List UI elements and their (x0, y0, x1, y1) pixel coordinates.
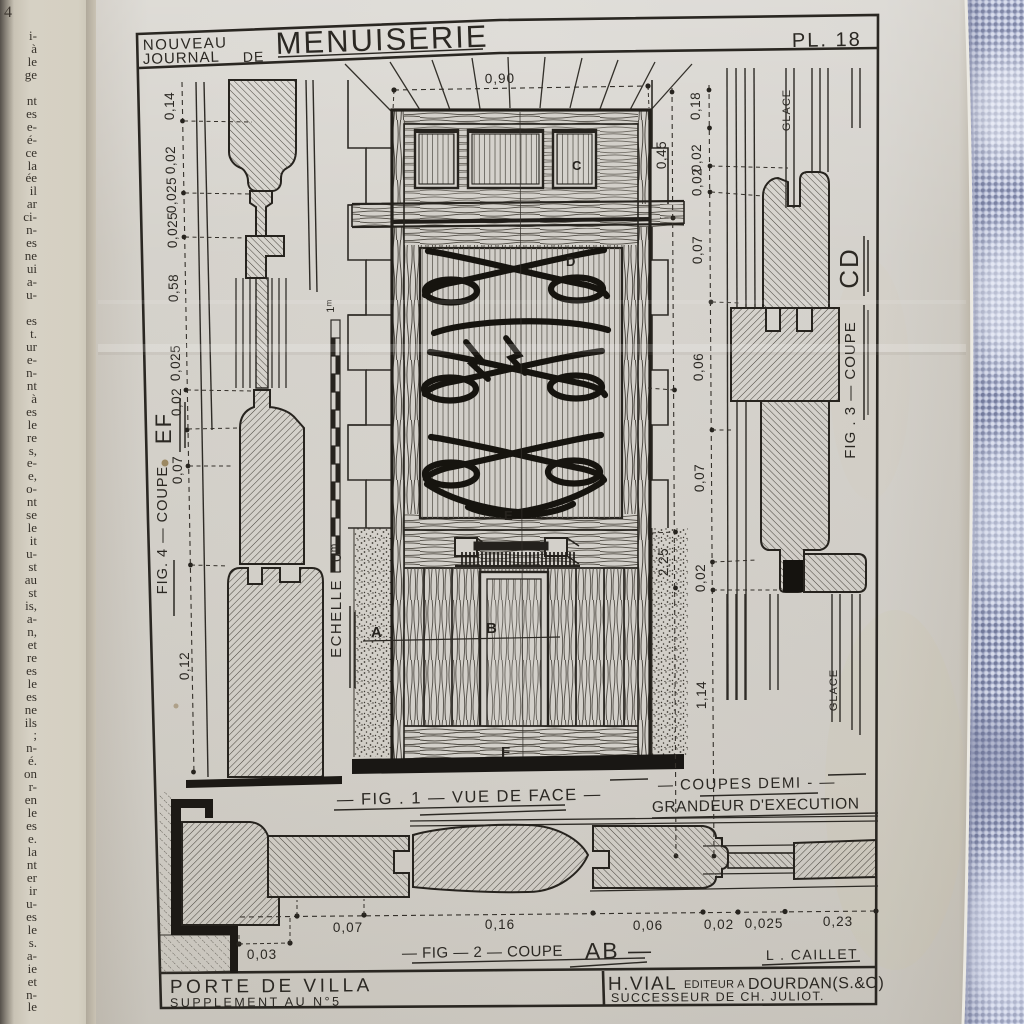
svg-text:MENUISERIE: MENUISERIE (275, 19, 489, 61)
svg-text:0,06: 0,06 (691, 353, 706, 381)
svg-text:0,06: 0,06 (633, 918, 663, 933)
svg-text:0,12: 0,12 (177, 652, 192, 680)
svg-text:0,025: 0,025 (745, 916, 784, 931)
svg-text:0,025: 0,025 (164, 177, 179, 213)
svg-text:ECHELLE : 0ᵐ: ECHELLE : 0ᵐ (328, 542, 345, 658)
svg-text:1,14: 1,14 (694, 681, 709, 709)
svg-text:EF: EF (151, 412, 176, 444)
svg-text:D: D (566, 254, 575, 269)
svg-text:0,02: 0,02 (690, 168, 705, 196)
svg-text:F: F (501, 744, 510, 761)
svg-text:FIG . 3 — COUPE: FIG . 3 — COUPE (842, 321, 859, 459)
svg-text:B: B (486, 620, 497, 637)
svg-text:A: A (371, 624, 382, 641)
svg-text:— COUPES DEMI - —: — COUPES DEMI - — (658, 774, 836, 794)
svg-text:2,25: 2,25 (656, 548, 671, 576)
svg-text:0,18: 0,18 (688, 92, 703, 120)
svg-text:— FIG — 2 — COUPE: — FIG — 2 — COUPE (402, 943, 563, 962)
svg-text:0,025: 0,025 (165, 212, 180, 248)
svg-text:GLACE: GLACE (781, 89, 793, 131)
svg-text:0,14: 0,14 (162, 92, 177, 120)
svg-text:0,16: 0,16 (485, 917, 515, 932)
svg-text:L . CAILLET: L . CAILLET (766, 946, 858, 963)
svg-text:E: E (504, 508, 513, 523)
svg-text:C: C (572, 158, 582, 173)
svg-text:0,07: 0,07 (170, 456, 185, 484)
svg-text:0,03: 0,03 (247, 947, 277, 962)
svg-text:0,02: 0,02 (163, 146, 178, 174)
svg-text:0,02: 0,02 (693, 564, 708, 592)
svg-text:0,02: 0,02 (704, 917, 734, 932)
svg-text:CD: CD (834, 247, 864, 289)
svg-text:PL. 18: PL. 18 (792, 29, 862, 52)
svg-text:0,58: 0,58 (166, 274, 181, 302)
svg-text:GRANDEUR D'EXECUTION: GRANDEUR D'EXECUTION (652, 795, 860, 816)
svg-text:0,23: 0,23 (823, 914, 853, 929)
svg-text:DE: DE (243, 48, 265, 65)
svg-text:0,02: 0,02 (169, 388, 184, 416)
svg-text:GLACE: GLACE (828, 669, 840, 711)
svg-text:SUPPLEMENT AU N°5: SUPPLEMENT AU N°5 (170, 995, 342, 1010)
svg-text:0,90: 0,90 (485, 71, 516, 87)
svg-text:JOURNAL: JOURNAL (143, 49, 221, 68)
svg-text:0,07: 0,07 (690, 236, 705, 264)
svg-text:SUCCESSEUR DE CH. JULIOT.: SUCCESSEUR DE CH. JULIOT. (611, 989, 825, 1005)
svg-text:0,07: 0,07 (333, 920, 363, 935)
svg-text:0,45: 0,45 (654, 141, 669, 169)
svg-text:0,07: 0,07 (692, 464, 707, 492)
svg-text:AB —: AB — (585, 937, 653, 964)
svg-text:FIG. 4 — COUPE: FIG. 4 — COUPE (155, 466, 171, 594)
